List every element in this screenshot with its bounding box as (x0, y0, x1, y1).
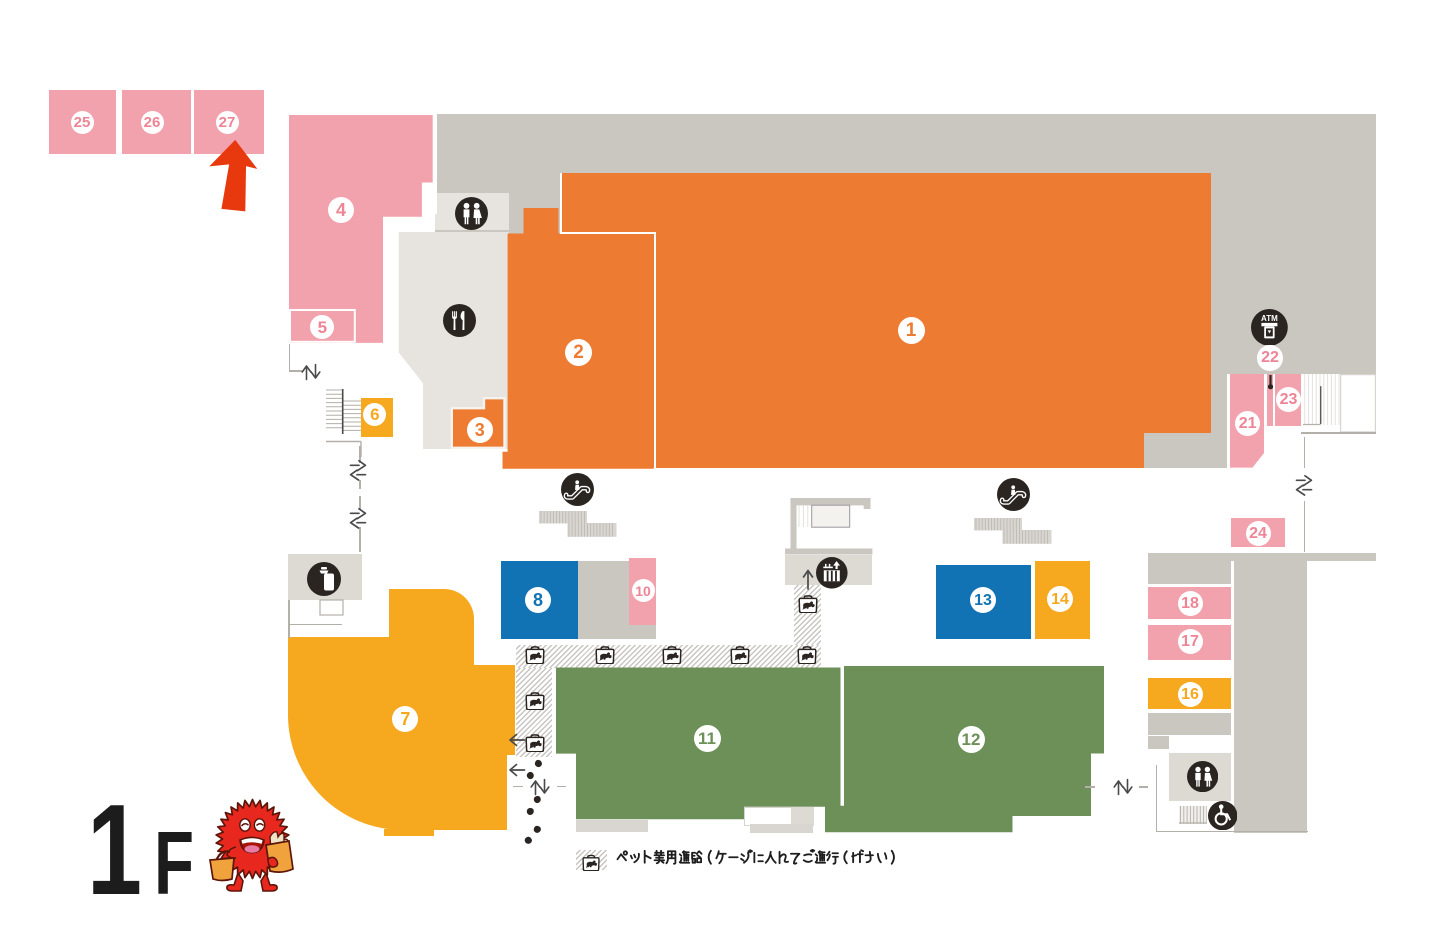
svg-text:1: 1 (88, 801, 142, 897)
svg-text:ATM: ATM (1261, 313, 1278, 322)
svg-text:F: F (154, 814, 194, 897)
